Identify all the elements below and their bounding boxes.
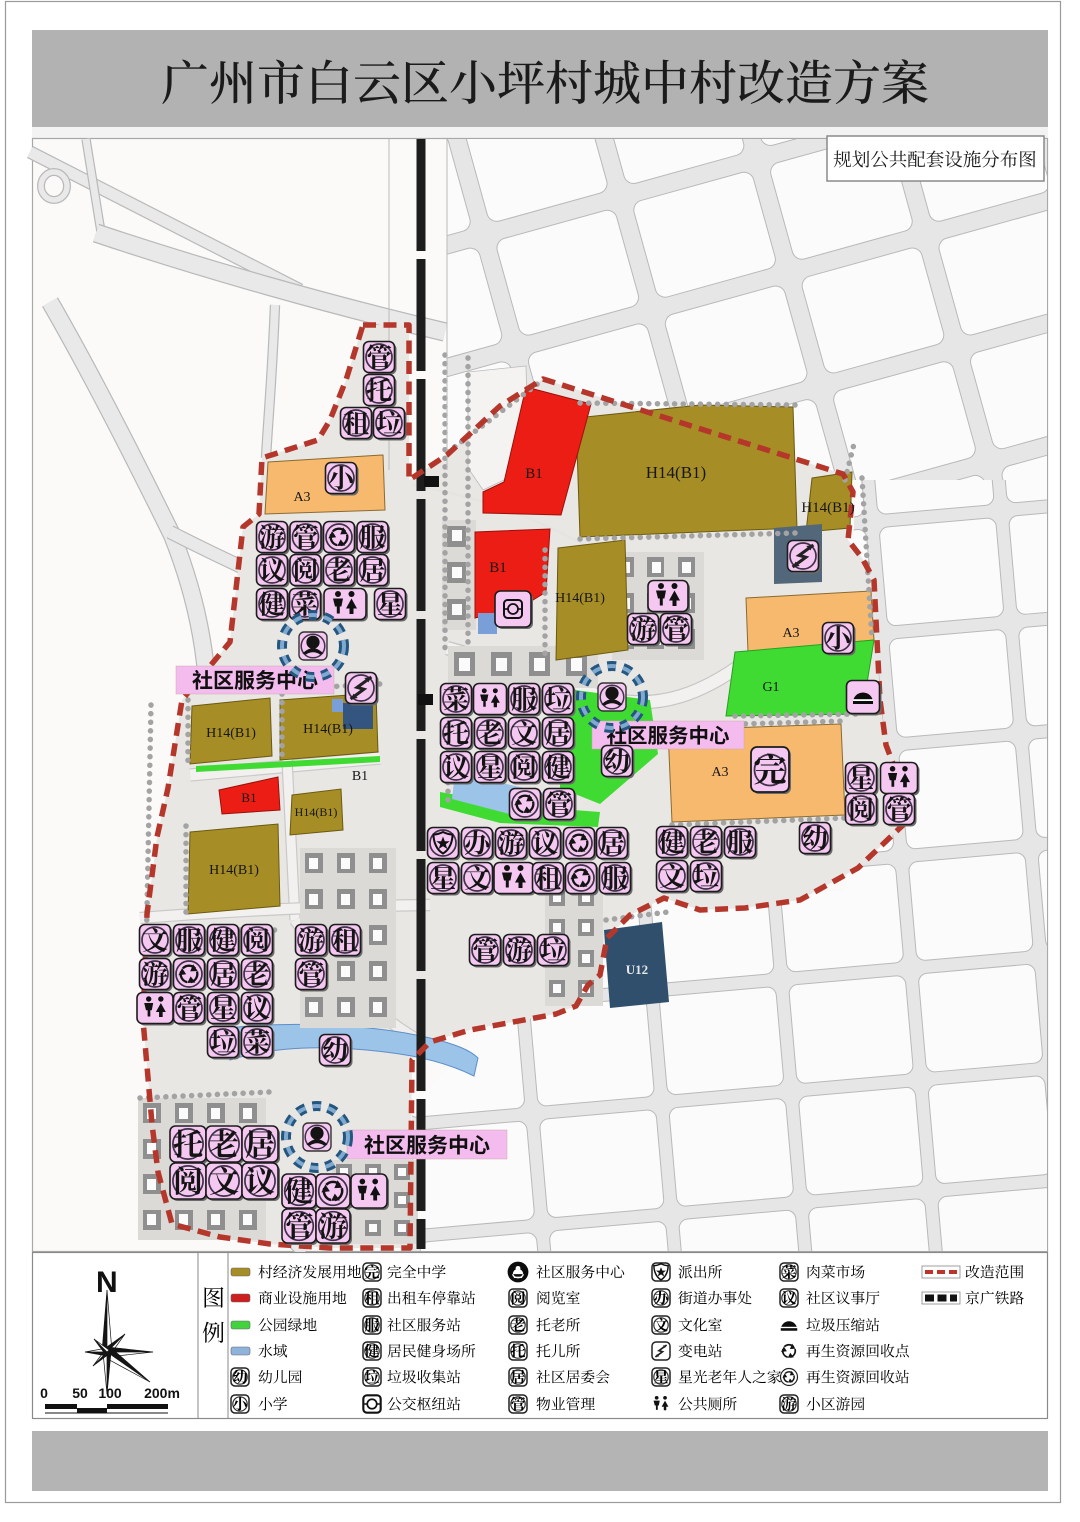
svg-text:H14(B1): H14(B1)	[555, 591, 605, 606]
svg-text:B1: B1	[352, 769, 368, 784]
svg-text:G1: G1	[762, 680, 779, 695]
svg-text:0: 0	[40, 1385, 48, 1401]
svg-text:100: 100	[98, 1385, 122, 1401]
svg-text:U12: U12	[626, 962, 648, 977]
svg-text:A3: A3	[293, 490, 310, 505]
svg-text:N: N	[96, 1266, 118, 1299]
svg-text:H14(B1): H14(B1)	[295, 805, 338, 819]
svg-text:H14(B1): H14(B1)	[303, 722, 353, 737]
svg-text:A3: A3	[711, 765, 728, 780]
svg-text:B1: B1	[489, 560, 507, 576]
svg-text:H14(B1): H14(B1)	[801, 500, 854, 516]
svg-text:A3: A3	[782, 626, 799, 641]
svg-text:200m: 200m	[144, 1385, 180, 1401]
svg-text:50: 50	[72, 1385, 88, 1401]
svg-text:B1: B1	[241, 790, 256, 805]
svg-text:H14(B1): H14(B1)	[206, 726, 256, 741]
svg-text:B1: B1	[525, 466, 543, 482]
svg-text:H14(B1): H14(B1)	[646, 463, 706, 482]
svg-text:H14(B1): H14(B1)	[209, 863, 259, 878]
